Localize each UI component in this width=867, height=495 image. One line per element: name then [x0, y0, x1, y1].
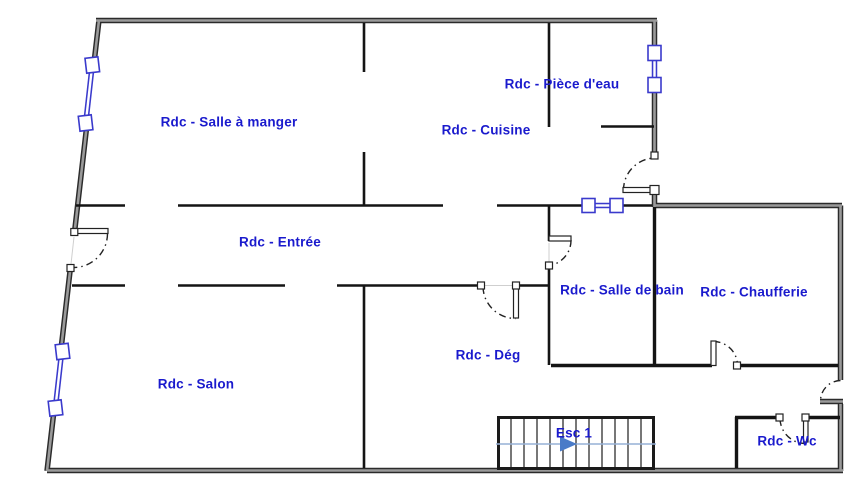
door-icon-back [623, 152, 659, 195]
room-label-cuisine[interactable]: Rdc - Cuisine [442, 123, 531, 138]
window-icon-left-upper [78, 57, 99, 131]
door-icon-exterior-right [820, 381, 840, 402]
exterior-walls [47, 20, 843, 471]
window-icon-left-lower [48, 343, 70, 416]
door-icon-entrance [67, 229, 108, 272]
floor-plan-drawing [0, 0, 867, 495]
stair-label-esc1[interactable]: Esc 1 [556, 426, 592, 441]
room-label-salon[interactable]: Rdc - Salon [158, 377, 234, 392]
door-icon-deg [478, 282, 520, 319]
room-label-entree[interactable]: Rdc - Entrée [239, 235, 321, 250]
room-label-salle-a-manger[interactable]: Rdc - Salle à manger [161, 115, 298, 130]
floor-plan-canvas: Rdc - Salle à manger Rdc - Pièce d'eau R… [0, 0, 867, 495]
interior-walls [72, 23, 840, 468]
door-icon-chaufferie [711, 341, 741, 369]
room-label-wc[interactable]: Rdc - Wc [757, 434, 816, 449]
room-label-salle-de-bain[interactable]: Rdc - Salle de bain [560, 283, 684, 298]
door-icon-salle-de-bain [546, 236, 572, 269]
room-label-deg[interactable]: Rdc - Dég [456, 348, 521, 363]
window-icon-salle-de-bain [582, 199, 623, 213]
room-label-piece-d-eau[interactable]: Rdc - Pièce d'eau [505, 77, 620, 92]
room-label-chaufferie[interactable]: Rdc - Chaufferie [700, 285, 807, 300]
window-icon-right-wall [648, 46, 661, 93]
